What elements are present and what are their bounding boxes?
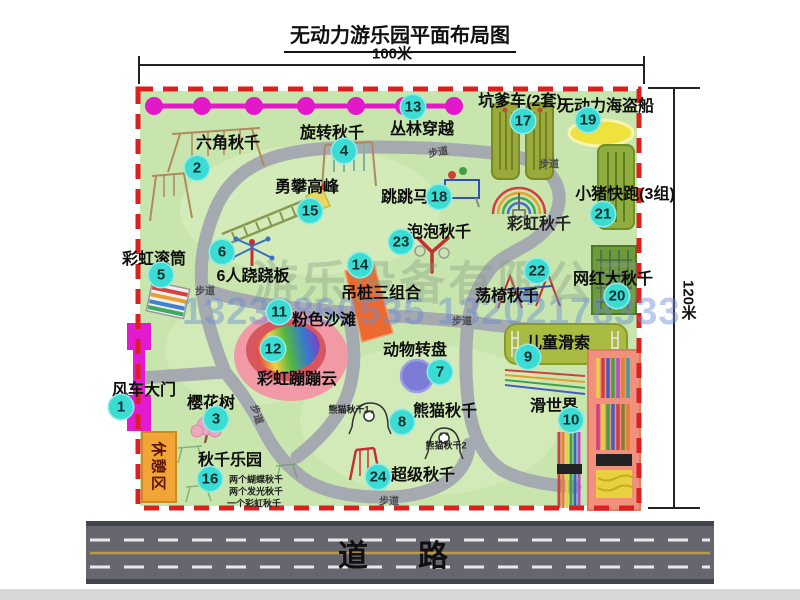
attraction-sublabel: 彩虹秋千 xyxy=(507,210,571,234)
road-label: 道 路 xyxy=(338,531,458,575)
attraction-badge: 3 xyxy=(203,406,230,433)
attraction-badge: 14 xyxy=(347,252,374,279)
attraction-label: 六角秋千 xyxy=(196,129,260,153)
dimension-width-label: 100米 xyxy=(372,43,412,64)
attraction-label: 6人跷跷板 xyxy=(217,262,290,286)
attraction-label: 跳跳马 xyxy=(381,183,429,207)
attraction-label: 动物转盘 xyxy=(383,336,447,360)
attraction-sublabel: 一个彩虹秋千 xyxy=(227,497,281,510)
attraction-badge: 8 xyxy=(389,409,416,436)
attraction-badge: 11 xyxy=(266,299,293,326)
walkway-label: 步道 xyxy=(539,156,559,171)
attraction-badge: 19 xyxy=(575,107,602,134)
attraction-badge: 16 xyxy=(197,466,224,493)
attraction-label: 吊桩三组合 xyxy=(341,279,421,303)
attraction-badge: 22 xyxy=(524,258,551,285)
attraction-label: 粉色沙滩 xyxy=(292,306,356,330)
attraction-badge: 10 xyxy=(558,407,585,434)
attraction-badge: 24 xyxy=(365,464,392,491)
attraction-badge: 5 xyxy=(148,262,175,289)
park-layout-figure: 无动力游乐园平面布局图 100米 120米 游乐设备有限公司 132338605… xyxy=(0,0,800,600)
walkway-label: 步道 xyxy=(195,283,215,298)
attraction-badge: 18 xyxy=(426,184,453,211)
attraction-badge: 23 xyxy=(388,229,415,256)
rest-area-label: 休憩区 xyxy=(149,441,170,492)
attraction-sublabel: 熊猫秋千1 xyxy=(328,403,369,416)
attraction-label: 荡椅秋千 xyxy=(475,282,539,306)
attraction-label: 熊猫秋千 xyxy=(413,397,477,421)
attraction-badge: 15 xyxy=(297,198,324,225)
footer-strip xyxy=(0,589,800,600)
attraction-sublabel: 熊猫秋千2 xyxy=(425,439,466,452)
attraction-badge: 12 xyxy=(260,336,287,363)
attraction-label: 丛林穿越 xyxy=(390,115,454,139)
attraction-badge: 13 xyxy=(400,94,427,121)
rest-area: 休憩区 xyxy=(141,431,177,503)
dimension-height-label: 120米 xyxy=(678,280,699,320)
attraction-label: 彩虹蹦蹦云 xyxy=(257,365,337,389)
attraction-label: 勇攀高峰 xyxy=(275,173,339,197)
attraction-badge: 6 xyxy=(209,239,236,266)
attraction-badge: 1 xyxy=(108,394,135,421)
walkway-label: 步道 xyxy=(452,313,472,328)
attraction-label: 超级秋千 xyxy=(391,461,455,485)
attraction-badge: 2 xyxy=(184,155,211,182)
attraction-badge: 17 xyxy=(510,108,537,135)
attraction-badge: 4 xyxy=(331,138,358,165)
attraction-badge: 21 xyxy=(590,201,617,228)
attraction-label: 无动力海盗船 xyxy=(558,92,654,116)
attraction-label: 旋转秋千 xyxy=(300,119,364,143)
attraction-badge: 7 xyxy=(427,359,454,386)
walkway-label: 步道 xyxy=(379,493,399,508)
attraction-badge: 9 xyxy=(515,344,542,371)
attraction-badge: 20 xyxy=(604,283,631,310)
attraction-label: 泡泡秋千 xyxy=(407,218,471,242)
attraction-label: 小猪快跑(3组) xyxy=(575,180,675,204)
